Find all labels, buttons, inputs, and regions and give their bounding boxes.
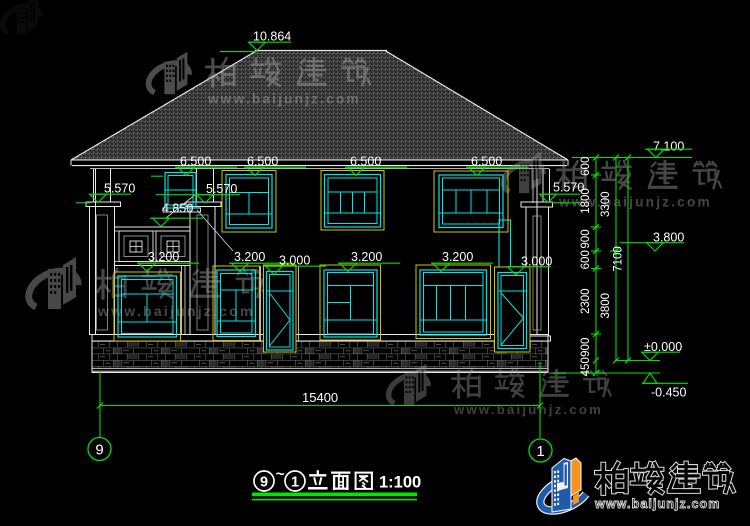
svg-text:3.000: 3.000 (279, 254, 310, 268)
svg-text:7100: 7100 (613, 246, 625, 272)
svg-text:600: 600 (580, 250, 592, 269)
svg-text:www.baijunjz.com: www.baijunjz.com (453, 402, 603, 417)
svg-text:1800: 1800 (580, 188, 592, 214)
svg-text:15400: 15400 (302, 390, 338, 405)
svg-text:5.570: 5.570 (104, 182, 135, 196)
svg-text:3300: 3300 (600, 191, 612, 217)
svg-text:900: 900 (580, 229, 592, 248)
svg-text:6.500: 6.500 (471, 155, 502, 169)
svg-text:-0.450: -0.450 (651, 386, 686, 400)
svg-text:3.200: 3.200 (351, 250, 382, 264)
svg-text:~: ~ (276, 466, 285, 483)
svg-text:3.200: 3.200 (234, 250, 265, 264)
svg-text:900: 900 (580, 338, 592, 357)
svg-text:www.baijunjz.com: www.baijunjz.com (207, 92, 361, 107)
svg-text:3.200: 3.200 (148, 250, 179, 264)
svg-text:7.100: 7.100 (653, 140, 684, 154)
svg-text:1: 1 (536, 443, 544, 460)
svg-text:10.864: 10.864 (253, 30, 291, 44)
svg-text:450: 450 (580, 357, 592, 376)
svg-text:3.200: 3.200 (442, 250, 473, 264)
svg-text:600: 600 (580, 157, 592, 176)
svg-text:3800: 3800 (600, 293, 612, 319)
svg-text:1:100: 1:100 (379, 474, 421, 492)
svg-text:www.baijunjz.com: www.baijunjz.com (97, 303, 255, 319)
svg-text:5.570: 5.570 (206, 182, 237, 196)
svg-text:4.850: 4.850 (162, 202, 193, 216)
svg-text:www.baijunjz.com: www.baijunjz.com (594, 497, 720, 511)
svg-text:9: 9 (260, 475, 268, 491)
svg-text:6.500: 6.500 (350, 155, 381, 169)
svg-text:1: 1 (291, 475, 299, 491)
svg-text:6.500: 6.500 (247, 155, 278, 169)
svg-text:9: 9 (95, 442, 103, 459)
svg-text:6.500: 6.500 (180, 155, 211, 169)
svg-text:2300: 2300 (580, 288, 592, 314)
